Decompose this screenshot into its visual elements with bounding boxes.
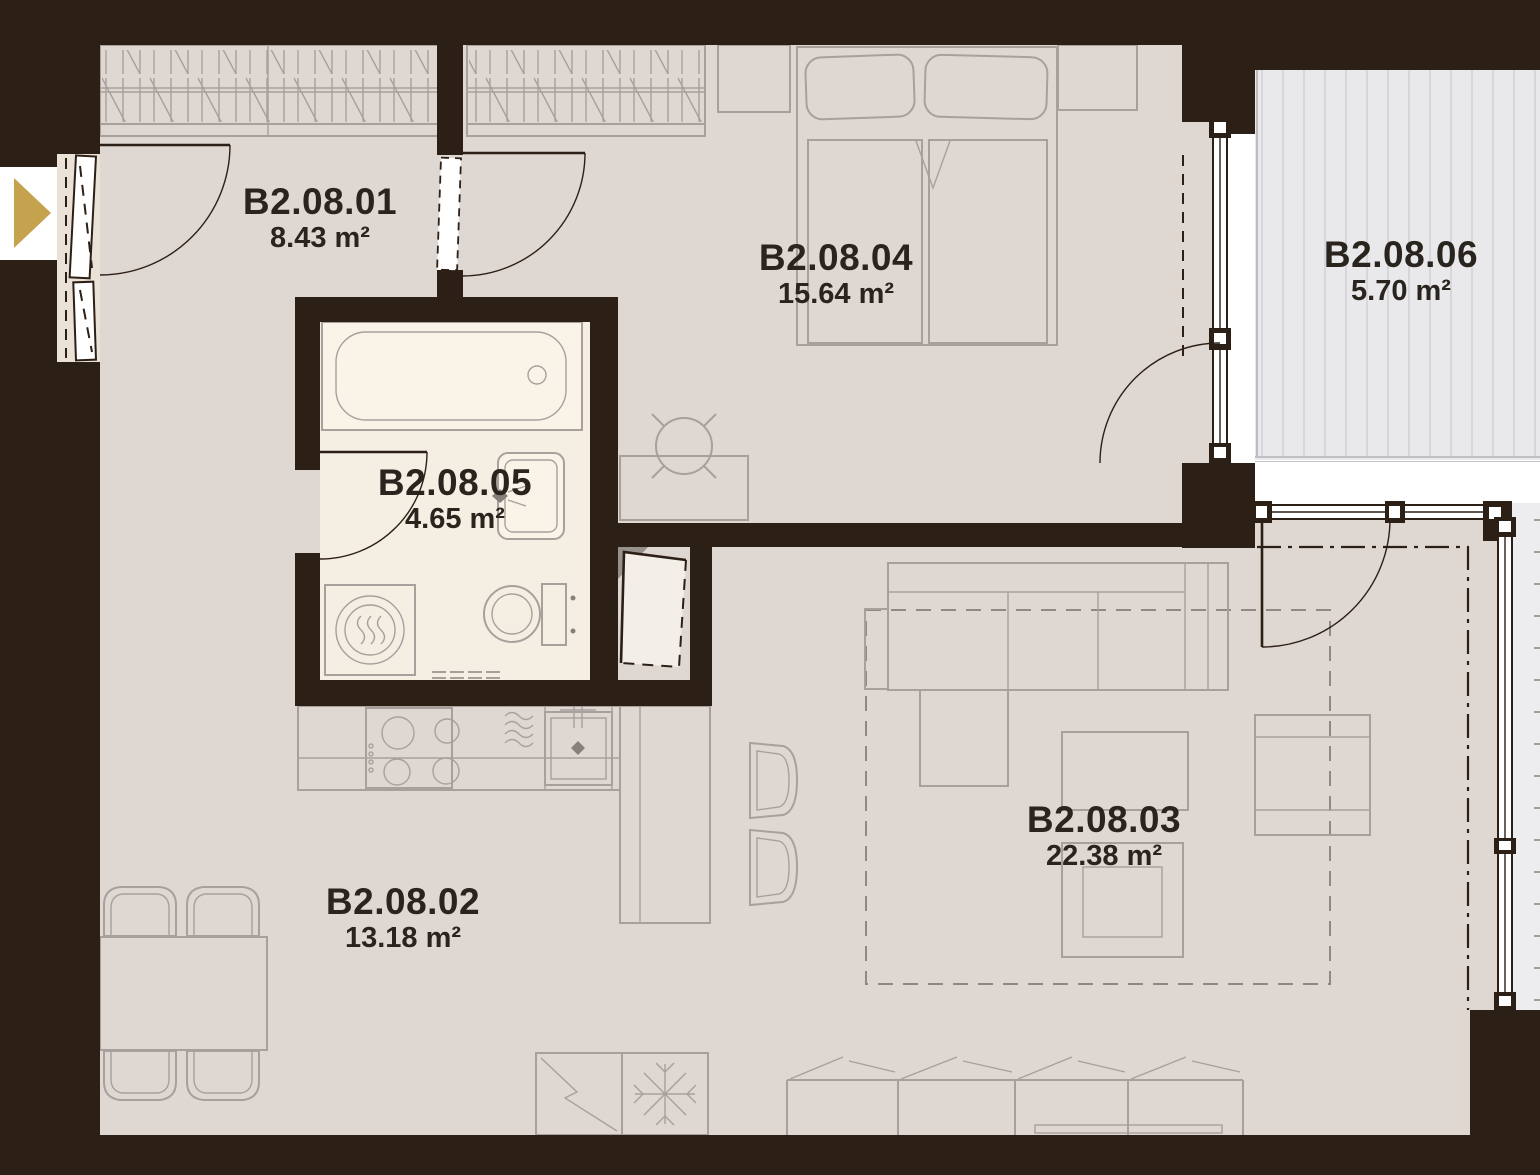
wall-bathroom-door-cap1 <box>295 445 320 470</box>
bathtub <box>322 322 582 430</box>
room-area: 22.38 m² <box>1027 842 1181 872</box>
room-area: 4.65 m² <box>378 505 532 535</box>
floorplan-drawing <box>0 0 1540 1175</box>
wall-niche-right <box>690 545 712 690</box>
living-right-window <box>1494 517 1516 1010</box>
wall-bottom-right <box>1470 1010 1540 1175</box>
wall-bedroom-bottom <box>618 523 1255 547</box>
exterior-gap-bedroom <box>1227 132 1255 463</box>
room-id: B2.08.05 <box>378 464 532 502</box>
room-label-bathroom: B2.08.05 4.65 m² <box>378 464 532 535</box>
wall-top-right <box>1240 0 1540 70</box>
floorplan-canvas: B2.08.01 8.43 m² B2.08.02 13.18 m² B2.08… <box>0 0 1540 1175</box>
room-id: B2.08.02 <box>326 883 480 921</box>
entrance-cap-bottom <box>57 362 100 388</box>
wall-bathroom-left-lower <box>295 578 320 680</box>
room-id: B2.08.01 <box>243 183 397 221</box>
room-area: 13.18 m² <box>326 924 480 954</box>
room-label-hall: B2.08.01 8.43 m² <box>243 183 397 254</box>
wall-bathroom-top <box>295 297 615 322</box>
room-id: B2.08.04 <box>759 239 913 277</box>
wall-bedroom-right-upper2 <box>1227 0 1255 134</box>
wall-hall-partition <box>437 45 463 155</box>
exterior-gap-balcony <box>1250 462 1540 503</box>
room-id: B2.08.06 <box>1324 236 1478 274</box>
wall-bathroom-left-upper <box>295 297 320 445</box>
room-label-kitchen: B2.08.02 13.18 m² <box>326 883 480 954</box>
utility-niche <box>618 547 690 668</box>
room-area: 8.43 m² <box>243 224 397 254</box>
wall-bottom <box>0 1135 1540 1175</box>
wall-hall-partition-cap <box>437 270 463 300</box>
entrance-door-assembly <box>57 154 100 362</box>
wall-bathroom-right <box>590 297 618 690</box>
room-label-living: B2.08.03 22.38 m² <box>1027 801 1181 872</box>
room-area: 5.70 m² <box>1324 277 1478 307</box>
room-id: B2.08.03 <box>1027 801 1181 839</box>
bedroom-balcony-window <box>1209 118 1231 463</box>
wall-bathroom-door-cap2 <box>295 553 320 578</box>
living-floor-extension <box>1250 519 1498 1135</box>
wall-bathroom-bottom <box>295 680 712 706</box>
entrance-cap-top <box>57 128 100 154</box>
room-label-balcony: B2.08.06 5.70 m² <box>1324 236 1478 307</box>
room-label-bedroom: B2.08.04 15.64 m² <box>759 239 913 310</box>
niche-panel <box>621 552 686 667</box>
room-area: 15.64 m² <box>759 280 913 310</box>
